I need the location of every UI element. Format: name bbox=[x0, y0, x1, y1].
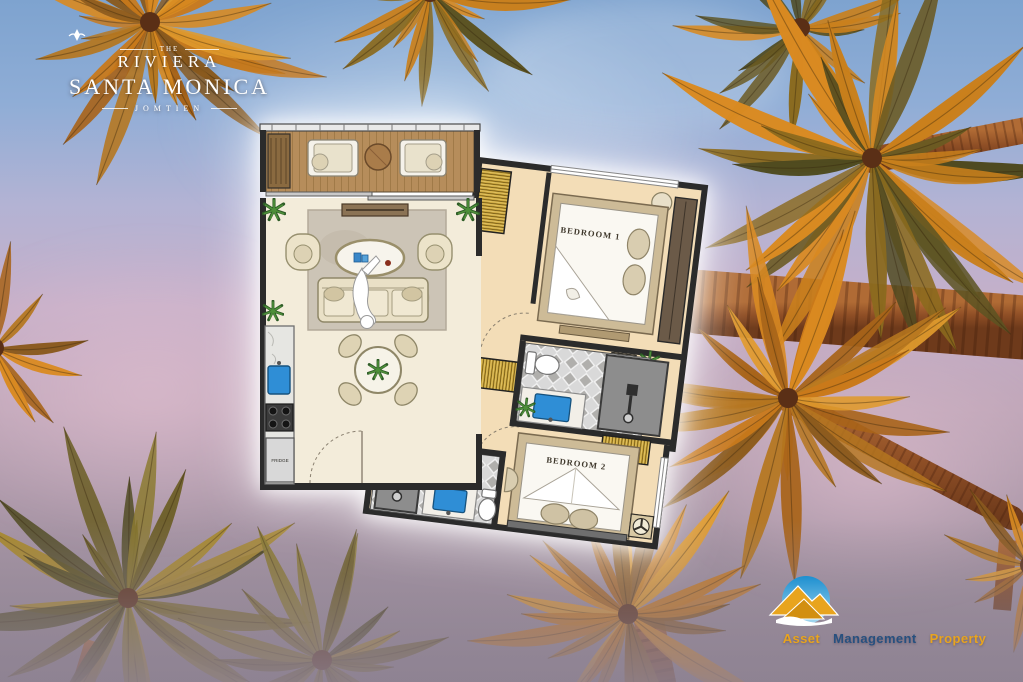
fan-coil-icon bbox=[629, 514, 654, 539]
logo-riviera: RIVIERA bbox=[62, 52, 277, 72]
crest-ornament-icon bbox=[62, 28, 277, 44]
agency-word-management: Management bbox=[833, 631, 916, 646]
kitchen: FRIDGE bbox=[265, 326, 294, 484]
agency-word-property: Property bbox=[930, 631, 987, 646]
logo-santa-monica: SANTA MONICA bbox=[62, 74, 277, 100]
floor-plan: BEDROOM 1 bbox=[250, 118, 720, 578]
mountain-logo-icon bbox=[762, 573, 1007, 629]
balcony-railing bbox=[260, 124, 480, 131]
stove-icon bbox=[266, 404, 293, 431]
balcony bbox=[260, 124, 480, 200]
marketing-image: { "branding": { "project": { "the": "THE… bbox=[0, 0, 1023, 682]
project-logo: THE RIVIERA SANTA MONICA JOMTIEN bbox=[62, 28, 277, 113]
fridge: FRIDGE bbox=[266, 438, 294, 482]
agency-word-asset: Asset bbox=[783, 631, 820, 646]
lounge-chair bbox=[308, 140, 358, 176]
bed-1: BEDROOM 1 bbox=[536, 193, 668, 344]
living-wing: FRIDGE bbox=[260, 124, 482, 490]
logo-jomtien: JOMTIEN bbox=[62, 104, 277, 113]
agency-wordmark: Asset Management Property bbox=[762, 631, 1007, 646]
agency-logo: Asset Management Property bbox=[762, 573, 1007, 646]
kitchen-sink bbox=[268, 361, 290, 394]
fridge-label: FRIDGE bbox=[271, 458, 288, 463]
lounge-chair bbox=[400, 140, 446, 176]
